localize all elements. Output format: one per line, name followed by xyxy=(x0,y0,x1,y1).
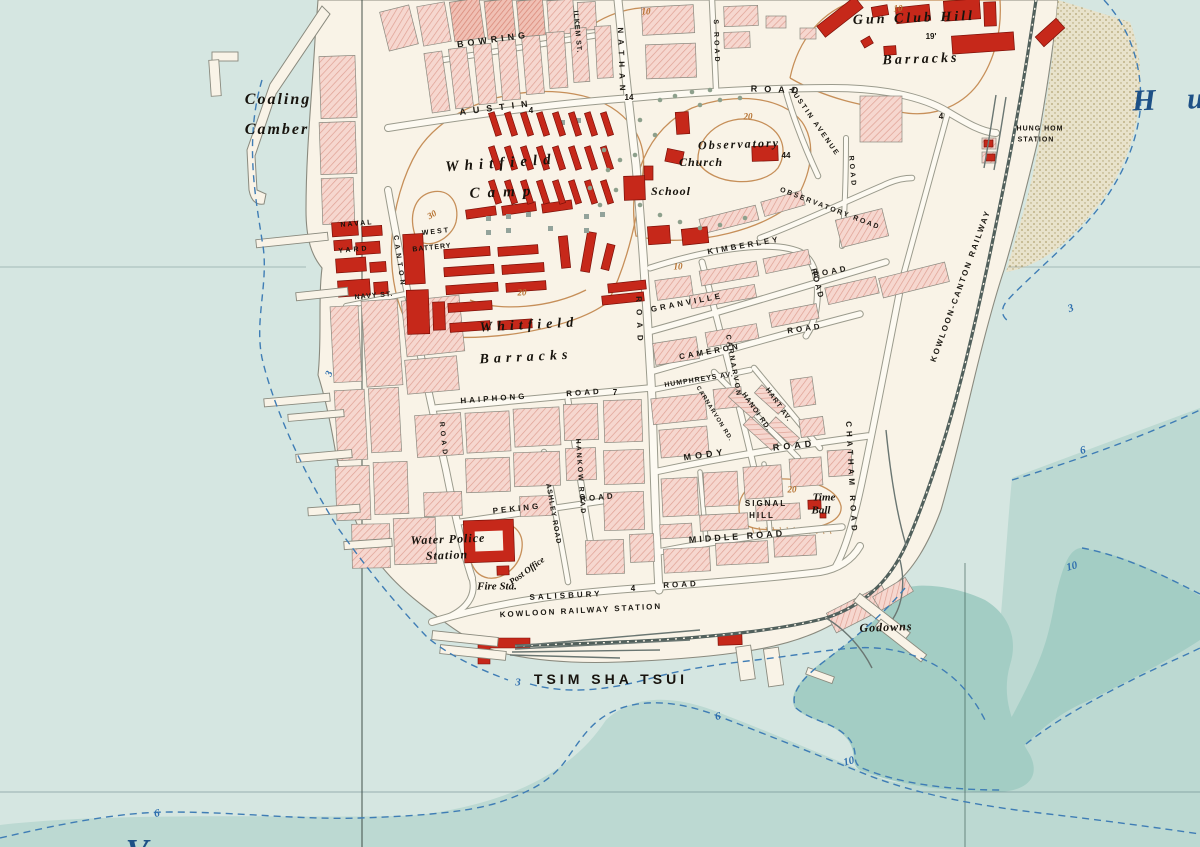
map-base-graphics xyxy=(0,0,1200,847)
map-canvas: BOWRINGILKEM ST.NATHANROADS ROADAUSTINRO… xyxy=(0,0,1200,847)
